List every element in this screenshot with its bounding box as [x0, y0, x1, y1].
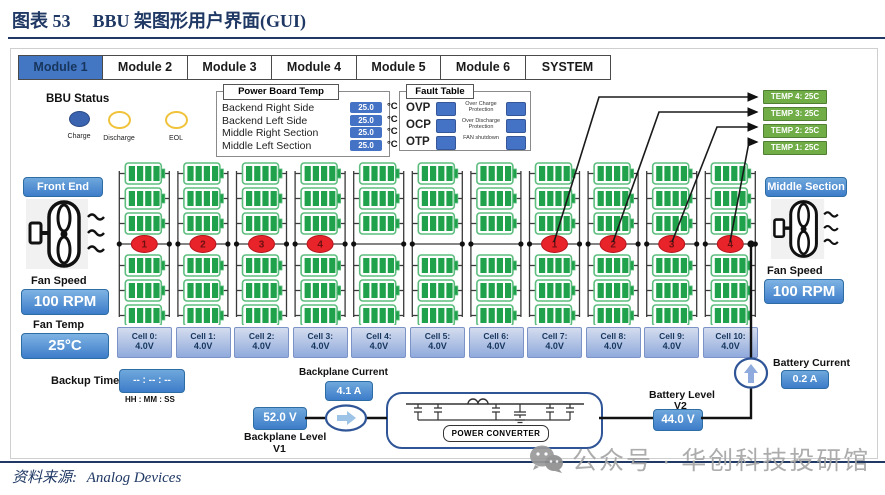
battery-cell-icon [418, 280, 458, 301]
fault-desc: Over Charge Protection [458, 101, 504, 114]
cell-label: Cell 7: [528, 331, 581, 341]
front-end-button[interactable]: Front End [23, 177, 103, 197]
fault-status-box[interactable] [436, 102, 456, 116]
battery-current-label: Battery Current [773, 357, 850, 369]
cell-label: Cell 3: [294, 331, 347, 341]
temp-row-label: Middle Right Section [222, 127, 318, 139]
middle-section-fan-icon [771, 199, 843, 259]
battery-cell-icon [536, 305, 576, 325]
battery-column-6 [468, 163, 523, 325]
thermistor-marker-3: 3 [249, 236, 275, 253]
battery-cell-icon [301, 188, 341, 209]
cell-label: Cell 6: [470, 331, 523, 341]
battery-cell-icon [594, 255, 634, 276]
battery-cell-icon [360, 305, 400, 325]
svg-text:4: 4 [728, 240, 734, 251]
battery-cell-icon [301, 163, 341, 184]
battery-cell-icon [184, 255, 224, 276]
cell-label: Cell 4: [352, 331, 405, 341]
battery-cell-icon [653, 213, 693, 234]
power-board-temp-row: Middle Left Section25.0°C [222, 140, 311, 152]
battery-cell-icon [301, 255, 341, 276]
battery-cell-icon [418, 305, 458, 325]
fault-protection-box[interactable] [506, 102, 526, 116]
cell-voltage-10[interactable]: Cell 10:4.0V [703, 327, 758, 358]
report-figure-page: 图表 53BBU 架图形用户界面(GUI) Module 1Module 2Mo… [0, 0, 885, 495]
fault-row-ovp: OVPOver Charge Protection [406, 101, 524, 117]
fault-row-ocp: OCPOver Discharge Protection [406, 118, 524, 134]
temp-readout-temp-3: TEMP 3: 25C [763, 107, 827, 121]
battery-cell-icon [243, 280, 283, 301]
cell-label: Cell 0: [118, 331, 171, 341]
thermistor-marker-2: 2 [190, 236, 216, 253]
temp-row-unit: °C [387, 101, 398, 112]
battery-cell-icon [711, 188, 751, 209]
flow-right-indicator [326, 406, 366, 431]
module-tab-bar: Module 1Module 2Module 3Module 4Module 5… [19, 55, 611, 80]
battery-cell-icon [653, 255, 693, 276]
svg-text:2: 2 [200, 240, 206, 251]
fault-status-box[interactable] [436, 136, 456, 150]
wechat-icon [528, 443, 564, 475]
battery-cell-icon [477, 188, 517, 209]
battery-cell-icon [477, 305, 517, 325]
middle-section-button[interactable]: Middle Section [765, 177, 847, 197]
battery-cell-icon [243, 188, 283, 209]
thermistor-marker-4: 4 [307, 236, 333, 253]
cell-voltage-0[interactable]: Cell 0:4.0V [117, 327, 172, 358]
fault-table-panel: OVPOver Charge ProtectionOCPOver Dischar… [399, 91, 531, 151]
battery-cell-icon [360, 163, 400, 184]
battery-cell-icon [711, 255, 751, 276]
cell-label: Cell 10: [704, 331, 757, 341]
thermistor-marker-2: 2 [600, 236, 626, 253]
battery-cell-icon [125, 163, 165, 184]
fault-row-otp: OTPFAN shutdown [406, 135, 524, 151]
front-end-fan-icon [26, 199, 110, 269]
battery-cell-icon [653, 188, 693, 209]
thermistor-marker-4: 4 [717, 236, 743, 253]
temp-row-value[interactable]: 25.0 [350, 127, 382, 138]
svg-text:1: 1 [142, 240, 148, 251]
battery-level-value[interactable]: 44.0 V [653, 409, 703, 431]
backplane-level-value[interactable]: 52.0 V [253, 407, 307, 430]
battery-cell-icon [594, 188, 634, 209]
bbu-status-indicators: ChargeDischargeEOLFAULT [41, 111, 241, 153]
indicator-label: EOL [146, 135, 206, 142]
battery-cell-icon [184, 163, 224, 184]
bbu-gui-window: Module 1Module 2Module 3Module 4Module 5… [10, 48, 878, 459]
front-end-fan-speed-value[interactable]: 100 RPM [21, 289, 109, 315]
cell-voltage-value: 4.0V [118, 341, 171, 351]
flow-up-indicator [735, 359, 767, 388]
front-end-fan-temp-label: Fan Temp [33, 319, 84, 331]
tab-module-5[interactable]: Module 5 [356, 55, 442, 80]
fault-desc: Over Discharge Protection [458, 118, 504, 131]
source-line: 资料来源: Analog Devices [12, 466, 181, 487]
tab-module-6[interactable]: Module 6 [440, 55, 526, 80]
battery-cell-icon [125, 188, 165, 209]
flow-up-arrow-icon [744, 364, 758, 383]
battery-cell-icon [301, 213, 341, 234]
cell-voltage-value: 4.0V [177, 341, 230, 351]
cell-voltage-value: 4.0V [470, 341, 523, 351]
battery-cell-icon [301, 305, 341, 325]
temp-row-label: Middle Left Section [222, 140, 311, 152]
battery-cell-icon [653, 163, 693, 184]
battery-cell-icon [418, 213, 458, 234]
temp-row-value[interactable]: 25.0 [350, 115, 382, 126]
battery-cell-icon [594, 305, 634, 325]
temp-readout-temp-1: TEMP 1: 25C [763, 141, 827, 155]
backplane-level-sub: V1 [273, 443, 286, 455]
tab-module-3[interactable]: Module 3 [187, 55, 273, 80]
battery-cell-icon [184, 213, 224, 234]
fault-status-box[interactable] [436, 119, 456, 133]
battery-cell-icon [243, 305, 283, 325]
temp-row-value[interactable]: 25.0 [350, 140, 382, 151]
figure-title: BBU 架图形用户界面(GUI) [93, 11, 307, 31]
battery-column-5 [410, 163, 465, 325]
battery-cell-icon [536, 163, 576, 184]
fault-code: OVP [406, 102, 430, 114]
svg-text:3: 3 [669, 240, 675, 251]
battery-cell-icon [536, 213, 576, 234]
battery-cell-icon [243, 163, 283, 184]
battery-cell-icon [184, 280, 224, 301]
cell-label: Cell 8: [587, 331, 640, 341]
svg-text:4: 4 [317, 240, 323, 251]
eol-lamp-icon [165, 111, 188, 129]
cell-voltage-6[interactable]: Cell 6:4.0V [469, 327, 524, 358]
battery-cell-icon [360, 280, 400, 301]
battery-cell-icon [360, 213, 400, 234]
cell-voltage-1[interactable]: Cell 1:4.0V [176, 327, 231, 358]
source-text: Analog Devices [87, 470, 182, 486]
cell-voltage-4[interactable]: Cell 4:4.0V [351, 327, 406, 358]
fault-protection-box[interactable] [506, 119, 526, 133]
cell-voltage-value: 4.0V [704, 341, 757, 351]
battery-cell-icon [594, 163, 634, 184]
fault-desc: FAN shutdown [458, 135, 504, 141]
battery-cell-icon [418, 163, 458, 184]
tab-system[interactable]: SYSTEM [525, 55, 611, 80]
fault-code: OCP [406, 119, 431, 131]
svg-text:3: 3 [259, 240, 265, 251]
fault-table-title: Fault Table [406, 84, 474, 99]
indicator-eol: EOL [146, 111, 206, 142]
power-board-temp-row: Backend Right Side25.0°C [222, 102, 314, 114]
temp-row-value[interactable]: 25.0 [350, 102, 382, 113]
battery-cell-icon [243, 213, 283, 234]
battery-cell-icon [125, 213, 165, 234]
thermistor-marker-3: 3 [659, 236, 685, 253]
battery-cell-icon [653, 305, 693, 325]
battery-cell-icon [418, 188, 458, 209]
temp-row-unit: °C [387, 139, 398, 150]
cell-label: Cell 1: [177, 331, 230, 341]
temp-row-label: Backend Left Side [222, 115, 307, 127]
battery-cell-icon [360, 188, 400, 209]
figure-caption: 图表 53BBU 架图形用户界面(GUI) [12, 7, 306, 33]
cell-voltage-value: 4.0V [411, 341, 464, 351]
tab-module-2[interactable]: Module 2 [102, 55, 188, 80]
indicator-label: Discharge [89, 135, 149, 142]
backplane-current-value[interactable]: 4.1 A [325, 381, 373, 401]
figure-number: 图表 53 [12, 11, 71, 31]
cell-voltage-5[interactable]: Cell 5:4.0V [410, 327, 465, 358]
battery-cell-icon [360, 255, 400, 276]
battery-string-grid: 12341234 [115, 161, 767, 325]
battery-cell-icon [711, 213, 751, 234]
cell-voltage-value: 4.0V [352, 341, 405, 351]
battery-cell-icon [418, 255, 458, 276]
cell-voltage-value: 4.0V [645, 341, 698, 351]
cell-voltage-value: 4.0V [235, 341, 288, 351]
bbu-status-title: BBU Status [46, 93, 109, 105]
tab-module-1[interactable]: Module 1 [18, 55, 104, 80]
power-board-temp-panel: Backend Right Side25.0°CBackend Left Sid… [216, 91, 390, 157]
power-board-temp-row: Backend Left Side25.0°C [222, 115, 307, 127]
power-board-temp-row: Middle Right Section25.0°C [222, 127, 318, 139]
temp-row-unit: °C [387, 126, 398, 137]
svg-text:2: 2 [610, 240, 616, 251]
power-converter-schematic-icon [388, 396, 596, 426]
battery-cell-icon [184, 305, 224, 325]
battery-cell-icon [477, 213, 517, 234]
battery-cell-icon [536, 255, 576, 276]
thermistor-marker-1: 1 [542, 236, 568, 253]
cell-voltage-value: 4.0V [587, 341, 640, 351]
cell-voltage-value: 4.0V [528, 341, 581, 351]
battery-cell-icon [243, 255, 283, 276]
svg-text:1: 1 [552, 240, 558, 251]
middle-section-fan-speed-label: Fan Speed [767, 265, 823, 277]
battery-cell-icon [477, 280, 517, 301]
cell-label: Cell 5: [411, 331, 464, 341]
battery-cell-icon [125, 255, 165, 276]
flow-right-arrow-icon [337, 411, 356, 425]
backup-timer-format: HH : MM : SS [125, 395, 175, 404]
cell-label: Cell 9: [645, 331, 698, 341]
tab-module-4[interactable]: Module 4 [271, 55, 357, 80]
temp-row-label: Backend Right Side [222, 102, 314, 114]
battery-cell-icon [301, 280, 341, 301]
indicator-discharge: Discharge [89, 111, 149, 142]
battery-current-value[interactable]: 0.2 A [781, 370, 829, 389]
cell-voltage-7[interactable]: Cell 7:4.0V [527, 327, 582, 358]
cell-label: Cell 2: [235, 331, 288, 341]
backplane-level-label: Backplane Level [244, 431, 326, 443]
backup-timer-label: Backup Timer [51, 375, 124, 387]
thermistor-marker-1: 1 [131, 236, 157, 253]
cell-voltage-2[interactable]: Cell 2:4.0V [234, 327, 289, 358]
front-end-fan-speed-label: Fan Speed [31, 275, 87, 287]
charge-lamp-icon [69, 111, 90, 127]
fault-code: OTP [406, 136, 430, 148]
caption-divider [8, 37, 885, 39]
battery-cell-icon [184, 188, 224, 209]
source-label: 资料来源: [12, 470, 77, 486]
fault-protection-box[interactable] [506, 136, 526, 150]
temp-readouts: TEMP 4: 25CTEMP 3: 25CTEMP 2: 25CTEMP 1:… [763, 90, 827, 158]
battery-cell-icon [711, 280, 751, 301]
battery-cell-icon [477, 163, 517, 184]
discharge-lamp-icon [108, 111, 131, 129]
watermark-text: 公众号 · 华创科技投研馆 [572, 441, 870, 477]
battery-cell-icon [536, 188, 576, 209]
battery-cell-icon [711, 305, 751, 325]
power-converter-label: POWER CONVERTER [443, 425, 549, 442]
battery-cell-icon [594, 280, 634, 301]
temp-row-unit: °C [387, 114, 398, 125]
temp-readout-temp-4: TEMP 4: 25C [763, 90, 827, 104]
middle-section-fan-speed-value[interactable]: 100 RPM [764, 279, 844, 304]
battery-cell-icon [594, 213, 634, 234]
cell-voltage-8[interactable]: Cell 8:4.0V [586, 327, 641, 358]
battery-cell-icon [125, 280, 165, 301]
battery-cell-icon [653, 280, 693, 301]
battery-cell-icon [536, 280, 576, 301]
backplane-current-label: Backplane Current [299, 367, 388, 378]
power-board-temp-title: Power Board Temp [223, 84, 339, 100]
battery-column-4 [351, 163, 406, 325]
watermark: 公众号 · 华创科技投研馆 [528, 441, 870, 477]
front-end-fan-temp-value[interactable]: 25°C [21, 333, 109, 359]
battery-cell-icon [125, 305, 165, 325]
cell-voltage-row: Cell 0:4.0VCell 1:4.0VCell 2:4.0VCell 3:… [115, 327, 767, 357]
temp-readout-temp-2: TEMP 2: 25C [763, 124, 827, 138]
cell-voltage-9[interactable]: Cell 9:4.0V [644, 327, 699, 358]
battery-cell-icon [711, 163, 751, 184]
cell-voltage-value: 4.0V [294, 341, 347, 351]
cell-voltage-3[interactable]: Cell 3:4.0V [293, 327, 348, 358]
battery-cell-icon [477, 255, 517, 276]
backup-timer-value[interactable]: -- : -- : -- [119, 369, 185, 393]
